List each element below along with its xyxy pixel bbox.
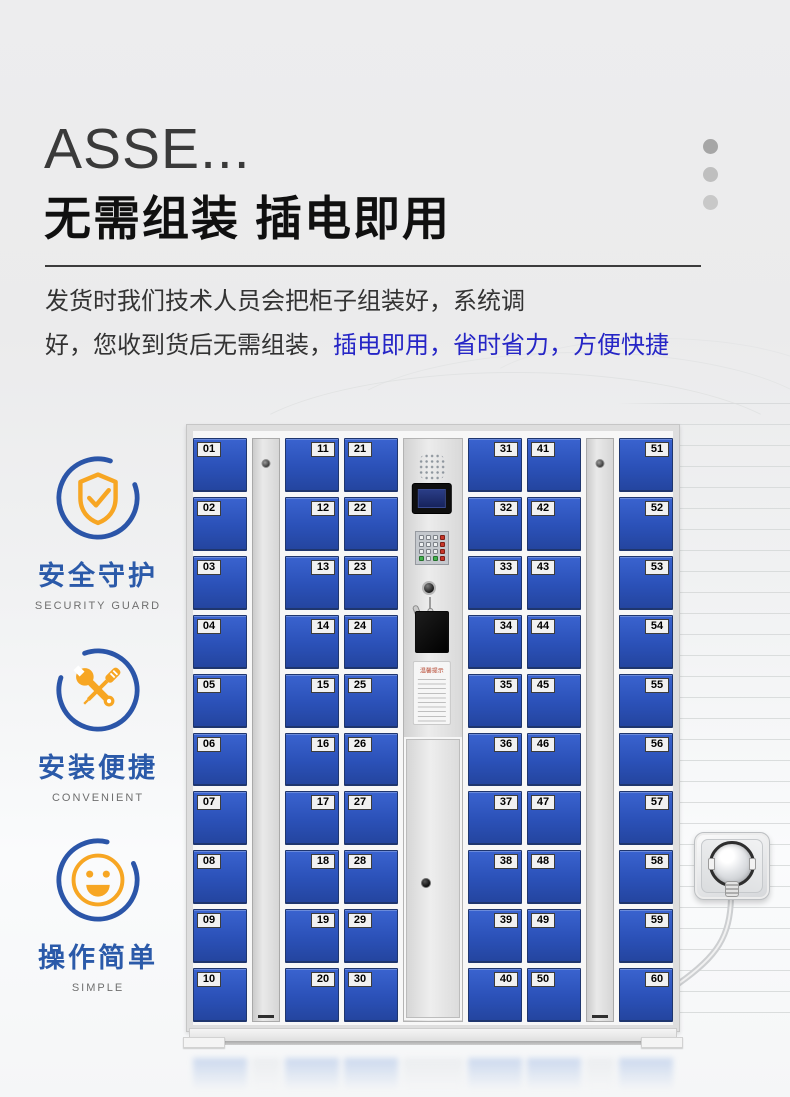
locker-door: 39	[468, 909, 522, 963]
control-lower-door	[406, 739, 460, 1018]
reflection-strip	[527, 1058, 581, 1094]
door-number-label: 36	[494, 737, 518, 752]
door-number-label: 41	[531, 442, 555, 457]
door-number-label: 10	[197, 972, 221, 987]
door-number-label: 31	[494, 442, 518, 457]
feature-icon	[54, 646, 142, 734]
door-number-label: 30	[348, 972, 372, 987]
locker-door: 07	[193, 791, 247, 845]
door-number-label: 59	[645, 913, 669, 928]
locker-door: 57	[619, 791, 673, 845]
door-number-label: 02	[197, 501, 221, 516]
door-number-label: 33	[494, 560, 518, 575]
locker-door: 11	[285, 438, 339, 492]
speaker-grille-icon	[417, 452, 447, 482]
locker-door: 46	[527, 733, 581, 787]
locker-door: 59	[619, 909, 673, 963]
feature-title: 操作简单	[8, 936, 188, 975]
door-number-label: 20	[311, 972, 335, 987]
locker-door: 13	[285, 556, 339, 610]
door-number-label: 05	[197, 678, 221, 693]
locker-door: 32	[468, 497, 522, 551]
door-number-label: 15	[311, 678, 335, 693]
door-column: 41 42 43 44 45 46 47 48 49 50	[527, 438, 581, 1022]
reflection-strip	[403, 1058, 463, 1094]
door-number-label: 27	[348, 795, 372, 810]
feature-block: 操作简单 SIMPLE	[8, 836, 188, 994]
door-number-label: 43	[531, 560, 555, 575]
locker-door: 38	[468, 850, 522, 904]
wall-socket	[694, 832, 770, 900]
door-number-label: 52	[645, 501, 669, 516]
door-column: 31 32 33 34 35 36 37 38 39 40	[468, 438, 522, 1022]
locker-door: 41	[527, 438, 581, 492]
locker-door: 05	[193, 674, 247, 728]
feature-icon	[54, 454, 142, 542]
feature-subtitle: SECURITY GUARD	[8, 600, 188, 612]
door-number-label: 07	[197, 795, 221, 810]
door-number-label: 01	[197, 442, 221, 457]
locker-door: 45	[527, 674, 581, 728]
door-number-label: 29	[348, 913, 372, 928]
door-number-label: 58	[645, 854, 669, 869]
feature-subtitle: CONVENIENT	[8, 792, 188, 804]
locker-door: 29	[344, 909, 398, 963]
locker-door: 03	[193, 556, 247, 610]
feature-block: 安装便捷 CONVENIENT	[8, 646, 188, 804]
description-paragraph: 发货时我们技术人员会把柜子组装好，系统调 好，您收到货后无需组装，插电即用，省时…	[45, 280, 765, 368]
base-shadow-line	[198, 1041, 668, 1045]
keypad	[415, 531, 449, 565]
locker-door: 18	[285, 850, 339, 904]
locker-door: 49	[527, 909, 581, 963]
door-number-label: 39	[494, 913, 518, 928]
locker-door: 54	[619, 615, 673, 669]
door-number-label: 22	[348, 501, 372, 516]
door-number-label: 12	[311, 501, 335, 516]
door-number-label: 45	[531, 678, 555, 693]
feature-block: 安全守护 SECURITY GUARD	[8, 454, 188, 612]
page-title-cn: 无需组装 插电即用	[44, 180, 451, 249]
decor-dot	[703, 195, 718, 210]
door-number-label: 24	[348, 619, 372, 634]
tips-label-title: 温馨提示	[417, 667, 448, 676]
locker-door: 42	[527, 497, 581, 551]
locker-door: 36	[468, 733, 522, 787]
locker-door: 14	[285, 615, 339, 669]
door-number-label: 19	[311, 913, 335, 928]
door-number-label: 55	[645, 678, 669, 693]
decor-dots	[703, 139, 718, 210]
locker-door: 20	[285, 968, 339, 1022]
locker-door: 48	[527, 850, 581, 904]
reflection-strip	[586, 1058, 614, 1094]
locker-door: 34	[468, 615, 522, 669]
door-number-label: 50	[531, 972, 555, 987]
locker-door: 28	[344, 850, 398, 904]
locker-door: 53	[619, 556, 673, 610]
door-column: 11 12 13 14 15 16 17 18 19 20	[285, 438, 339, 1022]
title-divider	[45, 265, 701, 267]
door-number-label: 49	[531, 913, 555, 928]
door-number-label: 06	[197, 737, 221, 752]
smiley-icon	[74, 856, 123, 905]
locker-door: 56	[619, 733, 673, 787]
door-number-label: 03	[197, 560, 221, 575]
locker-door: 25	[344, 674, 398, 728]
card-reader-window	[415, 611, 449, 653]
reflection-strip	[619, 1058, 673, 1094]
door-number-label: 04	[197, 619, 221, 634]
door-number-label: 60	[645, 972, 669, 987]
cabinet-base	[186, 1028, 680, 1054]
locker-door: 35	[468, 674, 522, 728]
reflection-strip	[344, 1058, 398, 1094]
door-number-label: 53	[645, 560, 669, 575]
locker-door: 27	[344, 791, 398, 845]
door-column: 21 22 23 24 25 26 27 28 29 30	[344, 438, 398, 1022]
door-number-label: 16	[311, 737, 335, 752]
locker-cabinet: 01 02 03 04 05 06 07 08 09 10 11 12 13 1…	[186, 424, 680, 1054]
floor-reflection	[186, 1058, 680, 1094]
locker-door: 02	[193, 497, 247, 551]
service-panel	[252, 438, 280, 1022]
description-line2-dark: 好，您收到货后无需组装，	[45, 332, 333, 359]
feature-subtitle: SIMPLE	[8, 982, 188, 994]
key-lock-icon	[422, 581, 436, 595]
locker-door: 55	[619, 674, 673, 728]
locker-door: 51	[619, 438, 673, 492]
locker-door: 06	[193, 733, 247, 787]
door-number-label: 25	[348, 678, 372, 693]
door-number-label: 14	[311, 619, 335, 634]
door-number-label: 56	[645, 737, 669, 752]
locker-door: 24	[344, 615, 398, 669]
locker-door: 22	[344, 497, 398, 551]
plug-cable-tail	[725, 881, 739, 897]
reflection-strip	[193, 1058, 247, 1094]
reflection-strip	[285, 1058, 339, 1094]
door-number-label: 23	[348, 560, 372, 575]
locker-door: 19	[285, 909, 339, 963]
door-number-label: 48	[531, 854, 555, 869]
tips-label: 温馨提示	[413, 661, 451, 725]
door-number-label: 21	[348, 442, 372, 457]
reflection-strip	[468, 1058, 522, 1094]
locker-door: 43	[527, 556, 581, 610]
tools-icon	[70, 662, 122, 711]
locker-door: 30	[344, 968, 398, 1022]
door-number-label: 37	[494, 795, 518, 810]
decor-dot	[703, 167, 718, 182]
locker-door: 50	[527, 968, 581, 1022]
locker-door: 09	[193, 909, 247, 963]
locker-door: 37	[468, 791, 522, 845]
door-column: 51 52 53 54 55 56 57 58 59 60	[619, 438, 673, 1022]
description-line1: 发货时我们技术人员会把柜子组装好，系统调	[45, 288, 525, 315]
locker-door: 60	[619, 968, 673, 1022]
door-number-label: 51	[645, 442, 669, 457]
door-number-label: 40	[494, 972, 518, 987]
door-number-label: 08	[197, 854, 221, 869]
door-number-label: 09	[197, 913, 221, 928]
locker-door: 31	[468, 438, 522, 492]
locker-door: 58	[619, 850, 673, 904]
locker-door: 12	[285, 497, 339, 551]
locker-door: 04	[193, 615, 247, 669]
service-panel	[586, 438, 614, 1022]
locker-door: 23	[344, 556, 398, 610]
feature-icon	[54, 836, 142, 924]
decor-dot	[703, 139, 718, 154]
reflection-strip	[252, 1058, 280, 1094]
locker-door: 26	[344, 733, 398, 787]
door-number-label: 54	[645, 619, 669, 634]
locker-door: 47	[527, 791, 581, 845]
door-number-label: 47	[531, 795, 555, 810]
shield-check-icon	[80, 475, 115, 523]
locker-door: 01	[193, 438, 247, 492]
door-number-label: 32	[494, 501, 518, 516]
locker-door: 33	[468, 556, 522, 610]
door-number-label: 34	[494, 619, 518, 634]
locker-door: 17	[285, 791, 339, 845]
locker-door: 16	[285, 733, 339, 787]
feature-title: 安装便捷	[8, 746, 188, 785]
page-title-en: ASSE...	[44, 116, 251, 182]
locker-door: 40	[468, 968, 522, 1022]
door-number-label: 28	[348, 854, 372, 869]
door-number-label: 44	[531, 619, 555, 634]
locker-door: 08	[193, 850, 247, 904]
door-number-label: 46	[531, 737, 555, 752]
door-number-label: 38	[494, 854, 518, 869]
door-number-label: 18	[311, 854, 335, 869]
lcd-screen	[412, 483, 452, 514]
door-number-label: 57	[645, 795, 669, 810]
door-number-label: 42	[531, 501, 555, 516]
cabinet-foot	[641, 1037, 683, 1048]
locker-door: 52	[619, 497, 673, 551]
description-line2-highlight: 插电即用，省时省力，方便快捷	[333, 332, 669, 359]
cabinet-shell: 01 02 03 04 05 06 07 08 09 10 11 12 13 1…	[186, 424, 680, 1032]
door-number-label: 13	[311, 560, 335, 575]
door-number-label: 35	[494, 678, 518, 693]
keyhole-icon	[421, 878, 431, 888]
door-number-label: 11	[311, 442, 335, 457]
door-column: 01 02 03 04 05 06 07 08 09 10	[193, 438, 247, 1022]
door-number-label: 26	[348, 737, 372, 752]
base-strip	[189, 1028, 677, 1042]
power-plug	[709, 841, 755, 887]
cabinet-foot	[183, 1037, 225, 1048]
locker-door: 15	[285, 674, 339, 728]
door-number-label: 17	[311, 795, 335, 810]
locker-door: 44	[527, 615, 581, 669]
tips-label-text-lines	[418, 679, 446, 725]
control-column: 温馨提示	[403, 438, 463, 1022]
promo-page: ASSE... 无需组装 插电即用 发货时我们技术人员会把柜子组装好，系统调 好…	[0, 0, 790, 1097]
cabinet-columns: 01 02 03 04 05 06 07 08 09 10 11 12 13 1…	[193, 438, 673, 1022]
locker-door: 21	[344, 438, 398, 492]
feature-title: 安全守护	[8, 554, 188, 593]
locker-door: 10	[193, 968, 247, 1022]
